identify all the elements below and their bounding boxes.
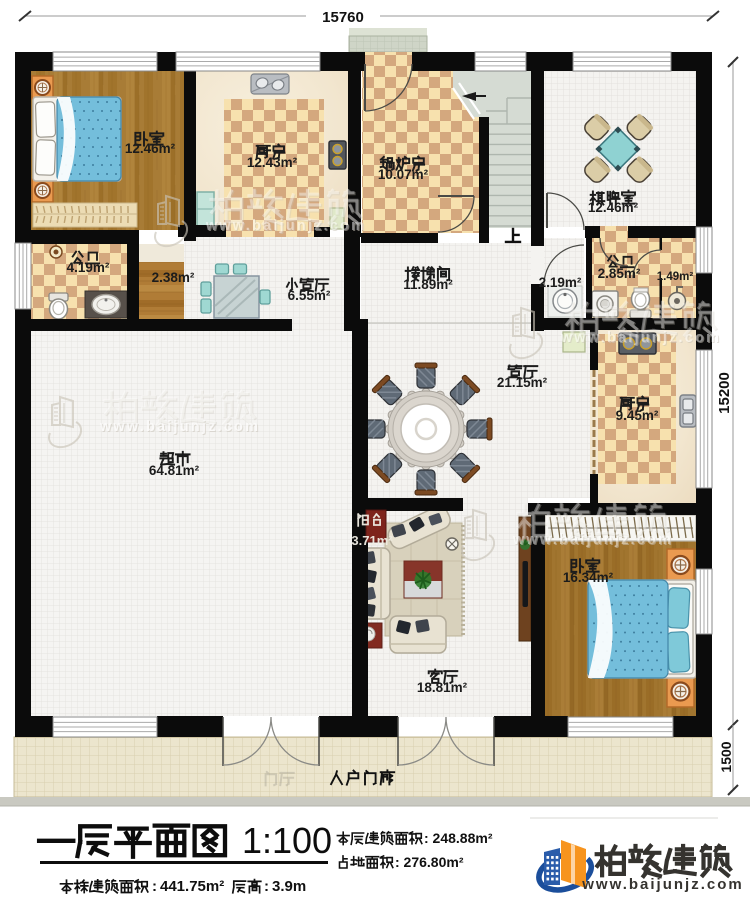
svg-text:9.45m²: 9.45m² [616, 408, 659, 423]
svg-text:4.19m²: 4.19m² [67, 260, 110, 275]
svg-text:11.89m²: 11.89m² [403, 277, 453, 292]
svg-text:18.81m²: 18.81m² [417, 680, 468, 695]
svg-text::: : [152, 878, 157, 895]
svg-text:1:100: 1:100 [242, 820, 332, 861]
svg-text:3.71m²: 3.71m² [351, 533, 393, 548]
svg-text:www.baijunjz.com: www.baijunjz.com [581, 876, 743, 893]
svg-text:16.34m²: 16.34m² [563, 570, 614, 585]
svg-text:12.46m²: 12.46m² [588, 200, 639, 215]
svg-text:3.9m: 3.9m [272, 878, 306, 895]
svg-text:10.07m²: 10.07m² [378, 167, 429, 182]
svg-text:64.81m²: 64.81m² [149, 463, 200, 478]
svg-text:1500: 1500 [718, 741, 734, 772]
svg-text:2.19m²: 2.19m² [539, 275, 582, 290]
svg-text:441.75m²: 441.75m² [160, 878, 224, 895]
svg-text::: : [264, 878, 269, 895]
svg-text:12.43m²: 12.43m² [247, 155, 298, 170]
svg-text:15760: 15760 [322, 9, 364, 26]
svg-text:6.55m²: 6.55m² [288, 288, 331, 303]
svg-text:21.15m²: 21.15m² [497, 375, 548, 390]
svg-text:: 276.80m²: : 276.80m² [395, 854, 464, 870]
svg-text:1.49m²: 1.49m² [657, 271, 694, 283]
svg-text:2.85m²: 2.85m² [598, 266, 641, 281]
svg-text:: 248.88m²: : 248.88m² [424, 830, 493, 846]
svg-text:2.38m²: 2.38m² [152, 270, 195, 285]
svg-text:15200: 15200 [716, 372, 733, 414]
svg-text:12.46m²: 12.46m² [125, 141, 176, 156]
